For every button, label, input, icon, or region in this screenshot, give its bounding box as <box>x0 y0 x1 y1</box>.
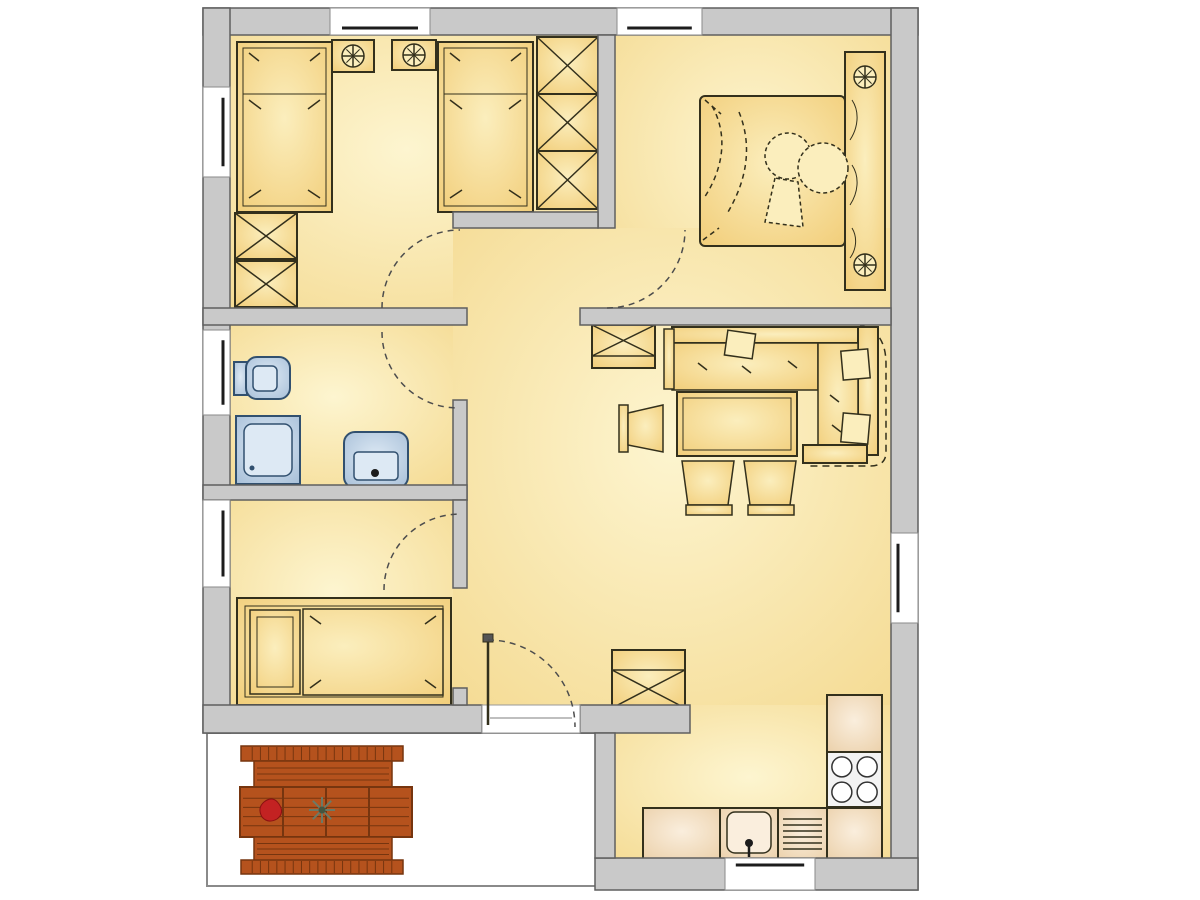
wall-kids-master <box>598 35 615 228</box>
master-lamp-2 <box>854 254 876 276</box>
window-top-1 <box>330 8 430 35</box>
table-flower <box>309 797 335 823</box>
window-top-2 <box>617 8 702 35</box>
wall-kids-stub <box>453 212 598 228</box>
wall-bottom-left <box>203 705 482 733</box>
chair-left-seat <box>628 405 663 452</box>
wall-lower-right-a <box>453 500 467 588</box>
picnic-bench-bottom-rail <box>241 860 403 874</box>
wall-kids-bottom <box>203 308 467 325</box>
sofa-cushion-3 <box>841 413 870 444</box>
drainer-board <box>778 808 827 860</box>
lamp-2 <box>403 44 425 66</box>
wall-bottom-mid <box>580 705 690 733</box>
chair-left-back <box>619 405 628 452</box>
single-bed-1 <box>237 42 332 212</box>
lamp-1 <box>342 45 364 67</box>
table-red-item <box>260 799 282 821</box>
master-lamp-1 <box>854 66 876 88</box>
sofa-back-top <box>672 327 878 343</box>
dining-table <box>677 392 797 456</box>
wall-top <box>203 8 918 35</box>
wardrobe-unit-3 <box>537 151 598 209</box>
wall-kitchen-west <box>595 733 615 858</box>
window-bottom-kitchen <box>725 858 815 890</box>
kitchen-counter-right <box>827 695 882 752</box>
kitchen-counter-bottom <box>643 808 721 860</box>
living-cabinet <box>592 325 655 368</box>
floor-plan-svg <box>0 0 1200 900</box>
kids-cabinet-1 <box>235 213 297 259</box>
chair-bottom-2-seat <box>744 461 796 505</box>
sofa-armrest-left <box>664 329 674 389</box>
wall-master-bottom <box>580 308 891 325</box>
window-left-bath <box>203 330 230 415</box>
window-left-kids <box>203 87 230 177</box>
chair-bottom-1-back <box>686 505 732 515</box>
master-pillow-2 <box>798 143 848 193</box>
wall-lower-right-b <box>453 688 467 705</box>
sofa-side-table <box>803 445 867 463</box>
shower-drain <box>250 466 255 471</box>
sofa-cushion-2 <box>841 349 870 380</box>
wardrobe-unit-2 <box>537 94 598 151</box>
kids-cabinet-2 <box>235 261 297 307</box>
toilet-seat <box>253 366 277 391</box>
entry-threshold <box>482 705 580 733</box>
wall-bath-bottom <box>203 485 467 500</box>
window-right-living <box>891 533 918 623</box>
chair-bottom-1-seat <box>682 461 734 505</box>
picnic-bench-top-rail <box>241 746 403 761</box>
chair-bottom-2-back <box>748 505 794 515</box>
window-left-lower <box>203 500 230 587</box>
wardrobe-unit-1 <box>537 37 598 94</box>
kitchen-cabinet <box>612 650 685 708</box>
floor-plan-page <box>0 0 1200 900</box>
single-bed-2 <box>438 42 533 212</box>
kitchen-counter-corner <box>827 808 882 860</box>
washbasin-faucet <box>371 469 379 477</box>
sofa-cushion-1 <box>724 330 755 359</box>
wall-right <box>891 8 918 890</box>
